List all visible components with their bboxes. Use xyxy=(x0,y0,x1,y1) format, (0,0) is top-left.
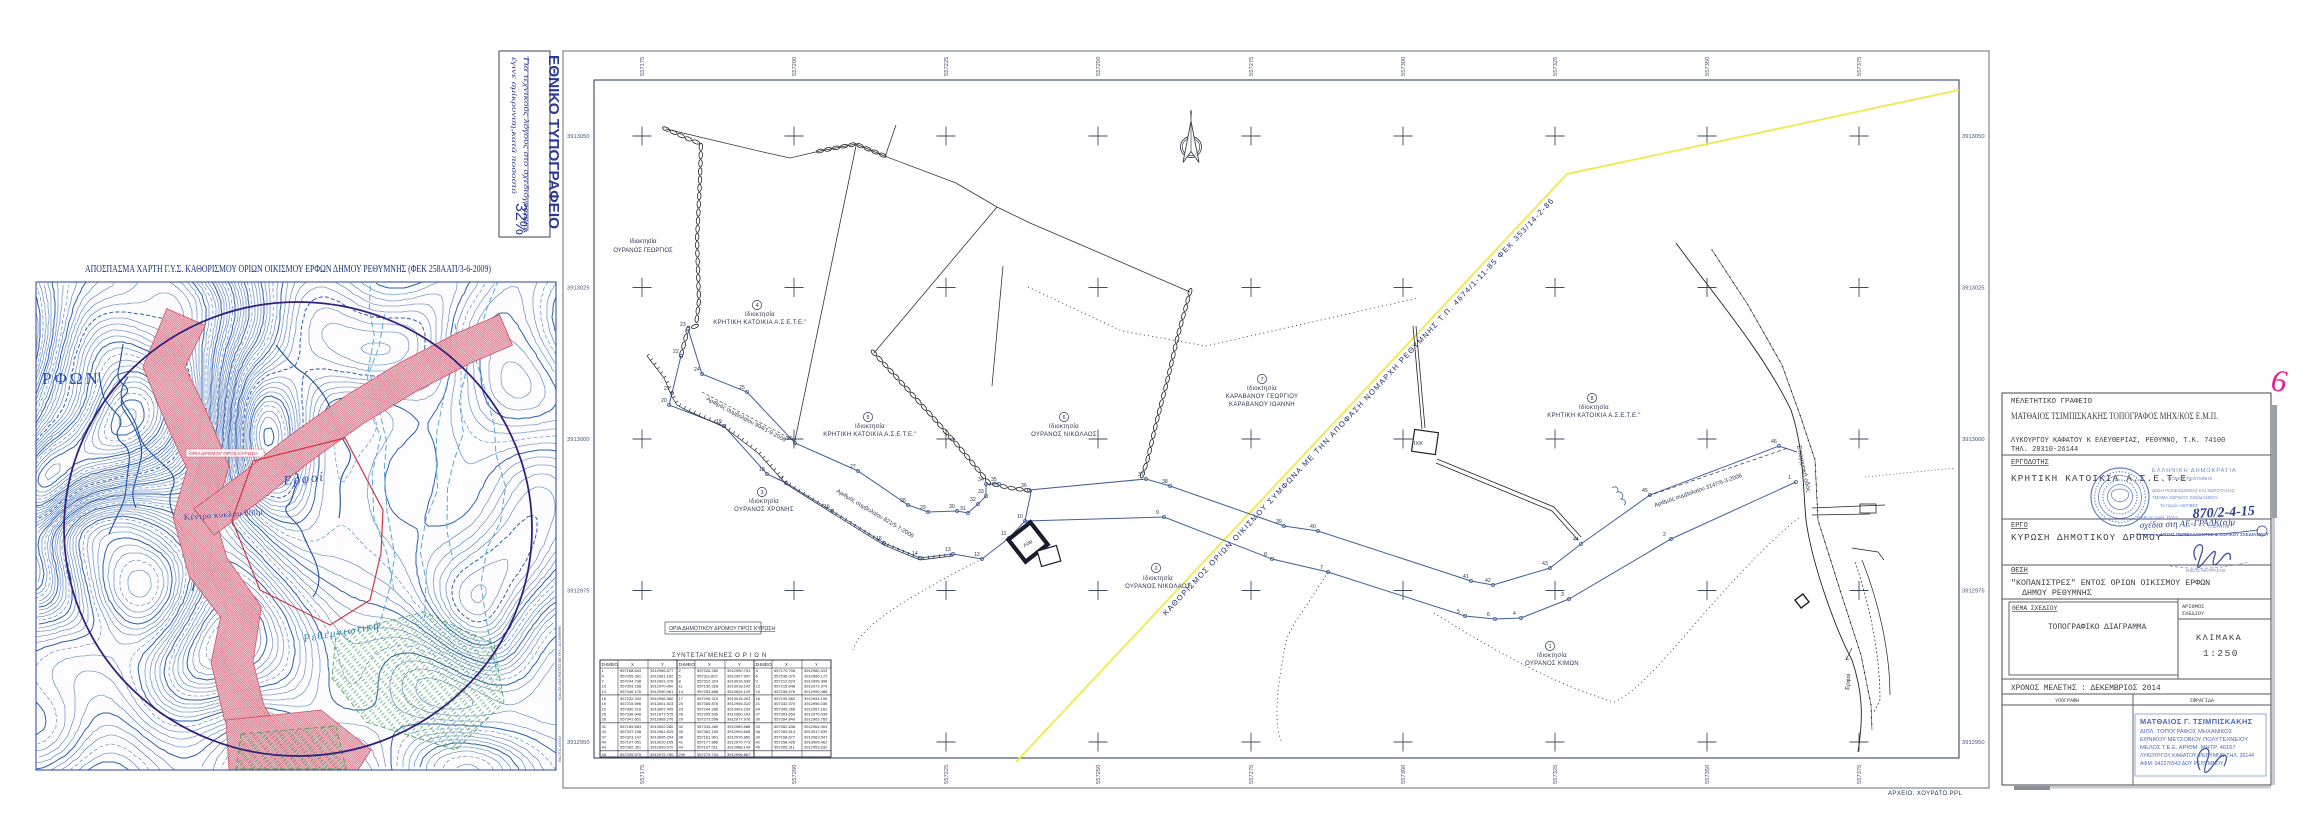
svg-text:3913000: 3913000 xyxy=(567,437,590,443)
svg-text:ΜΑΤΘΑΙΟΣ Γ. ΤΣΙΜΠΙΣΚΑΚΗΣ: ΜΑΤΘΑΙΟΣ Γ. ΤΣΙΜΠΙΣΚΑΚΗΣ xyxy=(2140,717,2253,726)
svg-text:"ΚΟΠΑΝΙΣΤΡΕΣ" ΕΝΤΟΣ ΟΡΙΩΝ ΟΙΚΙ: "ΚΟΠΑΝΙΣΤΡΕΣ" ΕΝΤΟΣ ΟΡΙΩΝ ΟΙΚΙΣΜΟΥ ΕΡΦΩΝ xyxy=(2011,578,2210,588)
svg-text:ΤΗΛ. 28310-26144: ΤΗΛ. 28310-26144 xyxy=(2011,446,2078,454)
svg-text:30: 30 xyxy=(756,717,761,722)
svg-text:3912950: 3912950 xyxy=(1962,740,1985,746)
svg-text:ΟΥΡΑΝΟΣ ΝΙΚΟΛΑΟΣ: ΟΥΡΑΝΟΣ ΝΙΚΟΛΑΟΣ xyxy=(1125,584,1191,590)
svg-text:Ο Δ/ΝΤΗΣ: Ο Δ/ΝΤΗΣ xyxy=(2208,524,2229,529)
svg-text:Ιδιοκτησία: Ιδιοκτησία xyxy=(1049,424,1079,430)
svg-text:31: 31 xyxy=(960,506,966,512)
svg-text:ΧΡΟΝΟΣ ΜΕΛΕΤΗΣ : ΔΕΚΕΜΒΡΙΟΣ 20: ΧΡΟΝΟΣ ΜΕΛΕΤΗΣ : ΔΕΚΕΜΒΡΙΟΣ 2014 xyxy=(2011,685,2161,693)
svg-text:4: 4 xyxy=(1513,611,1516,617)
svg-text:ΜΕΛΟΣ Τ.Ε.Ε. ΑΡΙΘΜ. ΜΗΤΡ. 4616: ΜΕΛΟΣ Τ.Ε.Ε. ΑΡΙΘΜ. ΜΗΤΡ. 46167 xyxy=(2140,745,2236,751)
svg-text:6: 6 xyxy=(1062,415,1065,421)
svg-text:24: 24 xyxy=(694,367,700,373)
svg-text:28: 28 xyxy=(602,717,607,722)
svg-text:557275: 557275 xyxy=(1249,57,1255,76)
svg-text:Ιδιοκτησία: Ιδιοκτησία xyxy=(1579,405,1609,411)
svg-text:ΘΕΜΑ ΣΧΕΔΙΟΥ: ΘΕΜΑ ΣΧΕΔΙΟΥ xyxy=(2012,605,2058,612)
svg-text:Y: Y xyxy=(815,662,818,667)
svg-text:45: 45 xyxy=(756,745,761,750)
svg-text:33: 33 xyxy=(978,489,984,495)
svg-text:ΚΡΗΤΙΚΗ ΚΑΤΟΙΚΙΑ Α.Σ.Ε.Τ.Ε.": ΚΡΗΤΙΚΗ ΚΑΤΟΙΚΙΑ Α.Σ.Ε.Τ.Ε." xyxy=(1547,413,1640,419)
svg-text:1: 1 xyxy=(1788,475,1791,481)
svg-text:Ιδιοκτησία: Ιδιοκτησία xyxy=(1247,386,1277,392)
svg-text:X: X xyxy=(785,662,788,667)
svg-text:9: 9 xyxy=(1156,510,1159,516)
svg-text:557200: 557200 xyxy=(792,765,798,784)
svg-text:Y: Y xyxy=(661,662,664,667)
svg-text:41: 41 xyxy=(1463,574,1469,580)
svg-text:46: 46 xyxy=(1771,439,1777,445)
svg-text:32%: 32% xyxy=(512,203,529,235)
svg-text:Ιδιοκτησία: Ιδιοκτησία xyxy=(745,312,775,318)
svg-text:3913000: 3913000 xyxy=(1962,437,1985,443)
svg-text:20: 20 xyxy=(661,398,667,404)
svg-text:ΝΙΚΟΣ ΜΑΥΡΑΚΗΣ: ΝΙΚΟΣ ΜΑΥΡΑΚΗΣ xyxy=(2186,568,2226,573)
svg-text:557156.676: 557156.676 xyxy=(774,689,796,694)
svg-text:3: 3 xyxy=(760,490,763,496)
svg-text:Ιδιοκτησία: Ιδιοκτησία xyxy=(1537,653,1567,659)
svg-text:ΕΛΛΗΝΙΚΗ ΔΗΜΟΚΡΑΤΙΑ: ΕΛΛΗΝΙΚΗ ΔΗΜΟΚΡΑΤΙΑ xyxy=(2152,468,2237,474)
svg-text:ΔΗΜΟΥ ΡΕΘΥΜΝΗΣ: ΔΗΜΟΥ ΡΕΘΥΜΝΗΣ xyxy=(2022,589,2092,598)
svg-text:3912969.276: 3912969.276 xyxy=(650,717,674,722)
svg-text:Ιδιοκτησία: Ιδιοκτησία xyxy=(630,239,657,245)
svg-text:557325: 557325 xyxy=(1553,765,1559,784)
svg-text:Ιδιοκτησία: Ιδιοκτησία xyxy=(749,499,779,505)
svg-text:3912996.867: 3912996.867 xyxy=(727,752,751,757)
svg-text:3912975.780: 3912975.780 xyxy=(650,752,674,757)
svg-text:ΕΡΓΟΔΟΤΗΣ: ΕΡΓΟΔΟΤΗΣ xyxy=(2011,459,2050,467)
svg-text:Y: Y xyxy=(738,662,741,667)
svg-text:557250: 557250 xyxy=(1096,765,1102,784)
svg-text:38: 38 xyxy=(1162,479,1168,485)
svg-text:557350: 557350 xyxy=(1705,57,1711,76)
svg-text:ΤΟΠΟΓΡΑΦΙΚΟ ΔΙΑΓΡΑΜΜΑ: ΤΟΠΟΓΡΑΦΙΚΟ ΔΙΑΓΡΑΜΜΑ xyxy=(2048,624,2147,632)
svg-text:ΑΠΟΣΠΑΣΜΑ ΧΑΡΤΗ Γ.Υ.Σ. ΚΑΘΟΡΙΣ: ΑΠΟΣΠΑΣΜΑ ΧΑΡΤΗ Γ.Υ.Σ. ΚΑΘΟΡΙΣΜΟΥ ΟΡΙΩΝ … xyxy=(85,264,491,275)
svg-text:Ιδιοκτησία: Ιδιοκτησία xyxy=(855,424,885,430)
svg-text:36: 36 xyxy=(1021,483,1027,489)
svg-text:ΣΗΜΕΙΟ: ΣΗΜΕΙΟ xyxy=(756,662,773,667)
svg-text:29: 29 xyxy=(920,505,926,511)
svg-text:ΟΥΡΑΝΟΣ ΓΕΩΡΓΙΟΣ: ΟΥΡΑΝΟΣ ΓΕΩΡΓΙΟΣ xyxy=(613,248,673,254)
svg-text:ΣΗΜΕΙΟ: ΣΗΜΕΙΟ xyxy=(602,662,619,667)
svg-text:13: 13 xyxy=(602,689,607,694)
svg-text:16: 16 xyxy=(824,504,830,510)
svg-text:ΚΩΔ.ΟΣ ΑΝΑ ΡΑΝΤΕΣ ΘΕ ΤΗΛ. 210: ΚΩΔ.ΟΣ ΑΝΑ ΡΑΝΤΕΣ ΘΕ ΤΗΛ. 210-9999999 xyxy=(558,626,562,700)
svg-text:46: 46 xyxy=(602,752,607,757)
svg-text:557175: 557175 xyxy=(640,765,646,784)
svg-text:ΔΝΣΗ ΠΟΛΕΟΔΟΜΙΑΣ ΚΑΙ ΧΩΡΟΤΑΞΙΑ: ΔΝΣΗ ΠΟΛΕΟΔΟΜΙΑΣ ΚΑΙ ΧΩΡΟΤΑΞΙΑΣ xyxy=(2152,488,2235,493)
svg-text:3913050: 3913050 xyxy=(1962,134,1985,140)
svg-text:12: 12 xyxy=(974,552,980,558)
svg-text:22: 22 xyxy=(673,349,679,355)
svg-text:ΚΑΡΑΒΑΝΟΥ ΙΩΑΝΝΗ: ΚΑΡΑΒΑΝΟΥ ΙΩΑΝΝΗ xyxy=(1229,402,1295,408)
svg-text:557346.176: 557346.176 xyxy=(620,689,642,694)
svg-text:ΥΠΟΓΡΑΦΗ: ΥΠΟΓΡΑΦΗ xyxy=(2055,698,2079,704)
svg-text:34: 34 xyxy=(978,477,984,483)
svg-text:ΛΥΚΟΥΡΓΟΥ ΚΑΦΑΤΟΥ, ΡΕΘΥΜΝΟ ΤΗΛ: ΛΥΚΟΥΡΓΟΥ ΚΑΦΑΤΟΥ, ΡΕΘΥΜΝΟ ΤΗΛ. 26144 xyxy=(2140,753,2254,759)
svg-text:6: 6 xyxy=(1487,612,1490,618)
svg-text:ΟΥΡΑΝΟΣ ΚΙΜΩΝ: ΟΥΡΑΝΟΣ ΚΙΜΩΝ xyxy=(1525,661,1579,667)
svg-text:ΜΑΤΘΑΙΟΣ ΤΣΙΜΠΙΣΚΑΚΗΣ ΤΟΠΟΓΡΑΦ: ΜΑΤΘΑΙΟΣ ΤΣΙΜΠΙΣΚΑΚΗΣ ΤΟΠΟΓΡΑΦΟΣ ΜΗΧ/ΚΟΣ… xyxy=(2011,412,2218,422)
svg-text:557325: 557325 xyxy=(1553,57,1559,76)
svg-text:557350: 557350 xyxy=(1705,765,1711,784)
svg-text:3912990.961: 3912990.961 xyxy=(650,689,674,694)
svg-text:30: 30 xyxy=(949,504,955,510)
svg-text:ΚΥΡΩΣΗ ΔΗΜΟΤΙΚΟΥ ΔΡΟΜΟΥ: ΚΥΡΩΣΗ ΔΗΜΟΤΙΚΟΥ ΔΡΟΜΟΥ xyxy=(2011,532,2162,543)
svg-text:557197.011: 557197.011 xyxy=(697,745,719,750)
svg-text:3912963.765: 3912963.765 xyxy=(804,717,828,722)
svg-text:ΕΘΝΙΚΟ ΤΥΠΟΓΡΑΦΕΙΟ: ΕΘΝΙΚΟ ΤΥΠΟΓΡΑΦΕΙΟ xyxy=(545,55,562,229)
svg-text:ΜΕΛΕΤΗΤΙΚΟ ΓΡΑΦΕΙΟ: ΜΕΛΕΤΗΤΙΚΟ ΓΡΑΦΕΙΟ xyxy=(2011,398,2093,406)
svg-text:1: 1 xyxy=(1548,644,1551,650)
svg-text:557200: 557200 xyxy=(792,57,798,76)
svg-text:ΟΥΡΑΝΟΣ ΝΙΚΟΛΑΟΣ: ΟΥΡΑΝΟΣ ΝΙΚΟΛΑΟΣ xyxy=(1031,432,1097,438)
svg-text:3912950: 3912950 xyxy=(567,740,590,746)
svg-text:557225: 557225 xyxy=(944,765,950,784)
svg-text:45: 45 xyxy=(1642,488,1648,494)
svg-text:ΚΡΗΤΙΚΗ ΚΑΤΟΙΚΙΑ Α.Σ.Ε.Τ.Ε.": ΚΡΗΤΙΚΗ ΚΑΤΟΙΚΙΑ Α.Σ.Ε.Τ.Ε." xyxy=(713,320,806,326)
svg-text:ΙΧΚ: ΙΧΚ xyxy=(1414,441,1423,447)
svg-text:557250: 557250 xyxy=(1096,57,1102,76)
svg-text:3912975: 3912975 xyxy=(567,589,590,595)
svg-text:557275: 557275 xyxy=(1249,765,1255,784)
svg-text:3: 3 xyxy=(1561,592,1564,598)
svg-text:ΑΦΜ: 042376543 ΔΟΥ ΡΕΘΥΜΝΟΥ: ΑΦΜ: 042376543 ΔΟΥ ΡΕΘΥΜΝΟΥ xyxy=(2140,761,2224,767)
svg-text:ΑΡΧΕΙΟ: ΧΟΥΡΔΤΟ.PPL: ΑΡΧΕΙΟ: ΧΟΥΡΔΤΟ.PPL xyxy=(1888,791,1962,797)
svg-text:ΟΥΡΑΝΟΣ ΧΡΟΝΗΣ: ΟΥΡΑΝΟΣ ΧΡΟΝΗΣ xyxy=(734,507,794,513)
svg-text:44: 44 xyxy=(679,745,684,750)
svg-text:3913025: 3913025 xyxy=(1962,286,1985,292)
svg-text:557279.734: 557279.734 xyxy=(697,752,719,757)
svg-text:13: 13 xyxy=(945,547,951,553)
svg-text:7: 7 xyxy=(1260,377,1263,383)
svg-text:557300: 557300 xyxy=(1401,765,1407,784)
svg-text:18: 18 xyxy=(759,467,765,473)
svg-text:ΚΡΗΤΙΚΗ ΚΑΤΟΙΚΙΑ Α.Σ.Ε.Τ.Ε.": ΚΡΗΤΙΚΗ ΚΑΤΟΙΚΙΑ Α.Σ.Ε.Τ.Ε." xyxy=(823,432,916,438)
svg-text:15: 15 xyxy=(756,689,761,694)
svg-text:557341.651: 557341.651 xyxy=(620,717,642,722)
svg-text:ΣΗΜΕΙΟ: ΣΗΜΕΙΟ xyxy=(679,662,696,667)
svg-text:3912975: 3912975 xyxy=(1962,589,1985,595)
svg-text:8: 8 xyxy=(1590,396,1593,402)
svg-text:ΟΡΙΑ ΔΡΟΜΟΥ ΠΡΟΣ ΚΥΡΩΣΗ: ΟΡΙΑ ΔΡΟΜΟΥ ΠΡΟΣ ΚΥΡΩΣΗ xyxy=(189,451,258,457)
svg-text:2: 2 xyxy=(1663,532,1666,538)
svg-text:557284.840: 557284.840 xyxy=(774,717,796,722)
svg-text:ΕΘΝΙΚΟΥ ΜΕΤΣΟΒΙΟΥ ΠΟΛΥΤΕΧΝΕΙΟΥ: ΕΘΝΙΚΟΥ ΜΕΤΣΟΒΙΟΥ ΠΟΛΥΤΕΧΝΕΙΟΥ xyxy=(2140,737,2248,743)
svg-text:557375: 557375 xyxy=(1857,765,1863,784)
svg-text:557300: 557300 xyxy=(1401,57,1407,76)
svg-text:42: 42 xyxy=(1485,578,1491,584)
svg-text:ΣΧΕΔΙΟΥ: ΣΧΕΔΙΟΥ xyxy=(2182,611,2205,617)
svg-text:43: 43 xyxy=(602,745,607,750)
svg-text:32: 32 xyxy=(970,497,976,503)
svg-text:557175: 557175 xyxy=(640,57,646,76)
svg-text:Ιδιοκτησία: Ιδιοκτησία xyxy=(1143,576,1173,582)
svg-text:ΣΥΝΤΕΤΑΓΜΕΝΕΣ Ο Ρ Ι Ω Ν: ΣΥΝΤΕΤΑΓΜΕΝΕΣ Ο Ρ Ι Ω Ν xyxy=(672,652,767,659)
svg-text:ΣΦΡΑΓΙΔΑ: ΣΦΡΑΓΙΔΑ xyxy=(2190,698,2214,704)
svg-text:ΕΡΓΟ: ΕΡΓΟ xyxy=(2011,522,2028,530)
svg-text:X: X xyxy=(708,662,711,667)
svg-text:3913050: 3913050 xyxy=(567,134,590,140)
svg-text:ΡΦΩΝ: ΡΦΩΝ xyxy=(42,369,101,388)
svg-text:ΘΑ-ΓΕΩ-ΧΧΧΧΧ: ΘΑ-ΓΕΩ-ΧΧΧΧΧ xyxy=(558,735,562,762)
svg-text:14: 14 xyxy=(679,689,684,694)
svg-text:3912999.488: 3912999.488 xyxy=(804,689,828,694)
svg-text:3912977.976: 3912977.976 xyxy=(727,717,751,722)
svg-text:ΑΡΙΘΜΟΣ: ΑΡΙΘΜΟΣ xyxy=(2182,604,2205,610)
svg-text:έγινε σμίκρυνση,κατά ποσοστό: έγινε σμίκρυνση,κατά ποσοστό xyxy=(510,57,519,194)
svg-text:3912988.149: 3912988.149 xyxy=(727,745,751,750)
svg-text:25: 25 xyxy=(739,385,745,391)
svg-text:1:250: 1:250 xyxy=(2203,648,2239,659)
svg-text:ΚΑΡΑΒΑΝΟΥ ΓΕΩΡΓΙΟΥ: ΚΑΡΑΒΑΝΟΥ ΓΕΩΡΓΙΟΥ xyxy=(1226,394,1299,400)
svg-text:39: 39 xyxy=(1276,519,1282,525)
svg-text:557362.351: 557362.351 xyxy=(620,745,642,750)
svg-text:40: 40 xyxy=(1310,524,1316,530)
svg-text:5: 5 xyxy=(866,415,869,421)
svg-text:11: 11 xyxy=(1001,531,1006,537)
svg-text:3912953.632: 3912953.632 xyxy=(804,745,828,750)
svg-text:10: 10 xyxy=(1017,514,1023,520)
svg-text:7: 7 xyxy=(1320,565,1323,571)
svg-text:ΔΙΠΛ. ΤΟΠΟΓΡΑΦΟΣ ΜΗΧΑΝΙΚΟΣ: ΔΙΠΛ. ΤΟΠΟΓΡΑΦΟΣ ΜΗΧΑΝΙΚΟΣ xyxy=(2140,729,2233,735)
svg-text:ΝΟΜΟΣ ΡΕΘΥΜΝΗΣ: ΝΟΜΟΣ ΡΕΘΥΜΝΗΣ xyxy=(2168,476,2212,481)
svg-text:ΛΥΚΟΥΡΓΟΥ ΚΑΦΑΤΟΥ Κ ΕΛΕΥΘΕΡΙΑΣ: ΛΥΚΟΥΡΓΟΥ ΚΑΦΑΤΟΥ Κ ΕΛΕΥΘΕΡΙΑΣ, ΡΕΘΥΜΝΟ,… xyxy=(2011,437,2225,445)
svg-text:557305.311: 557305.311 xyxy=(774,745,796,750)
svg-text:557253.688: 557253.688 xyxy=(697,689,719,694)
svg-text:557375: 557375 xyxy=(1857,57,1863,76)
svg-text:ΟΡΙΑ ΔΗΜΟΤΙΚΟΥ ΔΡΟΜΟΥ ΠΡΟΣ ΚΥΡ: ΟΡΙΑ ΔΗΜΟΤΙΚΟΥ ΔΡΟΜΟΥ ΠΡΟΣ ΚΥΡΩΣΗ xyxy=(669,626,775,632)
svg-text:ΚΛΙΜΑΚΑ: ΚΛΙΜΑΚΑ xyxy=(2196,633,2242,643)
svg-text:27: 27 xyxy=(850,464,856,470)
svg-text:557273.598: 557273.598 xyxy=(697,717,719,722)
svg-text:557225: 557225 xyxy=(944,57,950,76)
svg-text:3913004.129: 3913004.129 xyxy=(727,689,751,694)
svg-text:35: 35 xyxy=(991,477,997,483)
svg-text:3913025: 3913025 xyxy=(567,286,590,292)
svg-text:28: 28 xyxy=(900,498,906,504)
svg-text:3912999.570: 3912999.570 xyxy=(650,745,674,750)
svg-text:37: 37 xyxy=(1138,472,1144,478)
svg-text:557299.575: 557299.575 xyxy=(620,752,642,757)
svg-text:19: 19 xyxy=(716,419,722,425)
svg-text:X: X xyxy=(631,662,634,667)
svg-text:4: 4 xyxy=(755,303,758,309)
svg-text:29: 29 xyxy=(679,717,684,722)
svg-text:200: 200 xyxy=(679,752,686,757)
svg-text:43: 43 xyxy=(1542,561,1548,567)
svg-text:2: 2 xyxy=(1154,566,1157,572)
svg-text:ΔΝΣΗΣ ΠΕΡΙΒΑΛΛΟΝΤΟΣ & ΧΩΡΙΚΟΥ: ΔΝΣΗΣ ΠΕΡΙΒΑΛΛΟΝΤΟΣ & ΧΩΡΙΚΟΥ ΣΧΕΔΙΑΣΜΟΥ xyxy=(2160,532,2269,537)
svg-text:23: 23 xyxy=(680,322,686,328)
svg-text:8: 8 xyxy=(1264,552,1267,558)
svg-text:ΤΜΗΜΑ ΧΩΡΙΚΟΥ ΣΧΕΔΙΑΣΜΟΥ: ΤΜΗΜΑ ΧΩΡΙΚΟΥ ΣΧΕΔΙΑΣΜΟΥ xyxy=(2152,495,2218,500)
svg-text:ΘΕΣΗ: ΘΕΣΗ xyxy=(2011,567,2028,575)
svg-text:5: 5 xyxy=(1457,609,1460,615)
